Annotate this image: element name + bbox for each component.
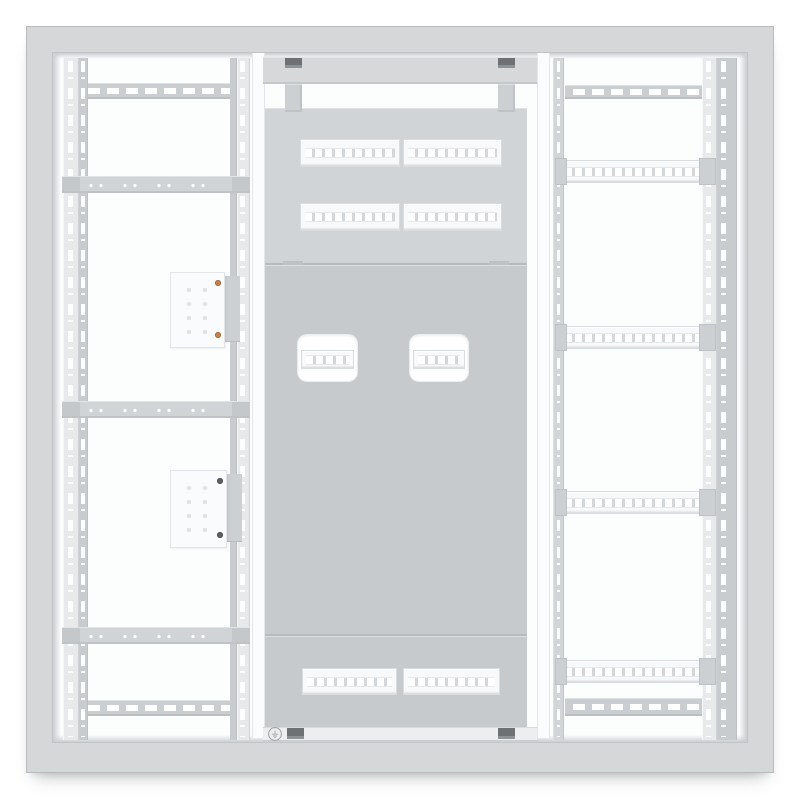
center-din-row2-right [403,203,502,231]
center-din-row1-right [403,139,502,167]
interior [53,53,747,742]
center-din-row2-left [300,203,400,231]
left-bay-cross-strap-3 [62,627,250,644]
center-bay-right-wall [537,53,550,738]
right-bay-din-rail-2 [560,326,705,349]
mounting-notch [498,58,515,68]
hanger-bracket [285,84,302,112]
center-bay-left-wall [252,53,265,738]
mounting-screw [217,478,223,484]
panel-cutout-left [298,335,357,381]
mounting-screw [215,280,221,286]
right-bay-din-rail-1 [560,160,705,183]
cabinet-frame [27,27,773,772]
right-bay-din-rail-4 [560,660,705,683]
left-bay-cross-strap-1 [62,176,250,193]
right-bay-bottom-slotted-rail [565,698,717,716]
center-din-row1-left [300,139,400,167]
seam-tab [489,261,509,265]
upright-side [717,58,737,740]
perforation-column [721,61,726,737]
ground-symbol-icon [267,726,283,742]
plate-seam-upper [265,263,527,265]
seam-tab [283,261,303,265]
terminal-block-bottom [170,470,227,548]
center-bottom-bar [263,727,537,741]
rail-end-cap [555,658,567,685]
center-din-bottom-left [302,668,397,695]
rail-end-cap [699,158,716,185]
right-bay-top-slotted-rail [565,85,715,99]
right-bay-din-rail-3 [560,491,705,514]
cutout-din-rail [413,350,465,369]
rail-end-cap [555,158,567,185]
render-stage [0,0,800,800]
terminal-hole-grid [181,283,210,337]
rail-end-cap [555,324,567,351]
mounting-plate-upper-section [265,108,527,263]
rail-end-cap [555,489,567,516]
left-bay-cross-strap-2 [62,401,250,418]
rail-end-cap [699,658,716,685]
plate-seam-lower [265,634,527,636]
hanger-bracket [498,84,515,112]
center-top-bar [263,57,537,84]
left-bay-top-slotted-rail [80,83,238,99]
cutout-din-rail [301,350,354,369]
frame-lip-left [53,53,61,742]
mounting-notch [287,728,304,739]
rail-end-cap [699,324,716,351]
center-din-bottom-right [403,668,500,695]
rail-end-cap [699,489,716,516]
mounting-notch [498,728,515,739]
terminal-hole-grid [181,481,212,537]
mounting-screw [217,532,223,538]
terminal-block-top [170,272,225,348]
mounting-notch [285,58,302,68]
panel-cutout-right [410,335,468,381]
mounting-screw [215,332,221,338]
frame-lip-right [739,53,747,742]
left-bay-bottom-slotted-rail [80,700,238,716]
